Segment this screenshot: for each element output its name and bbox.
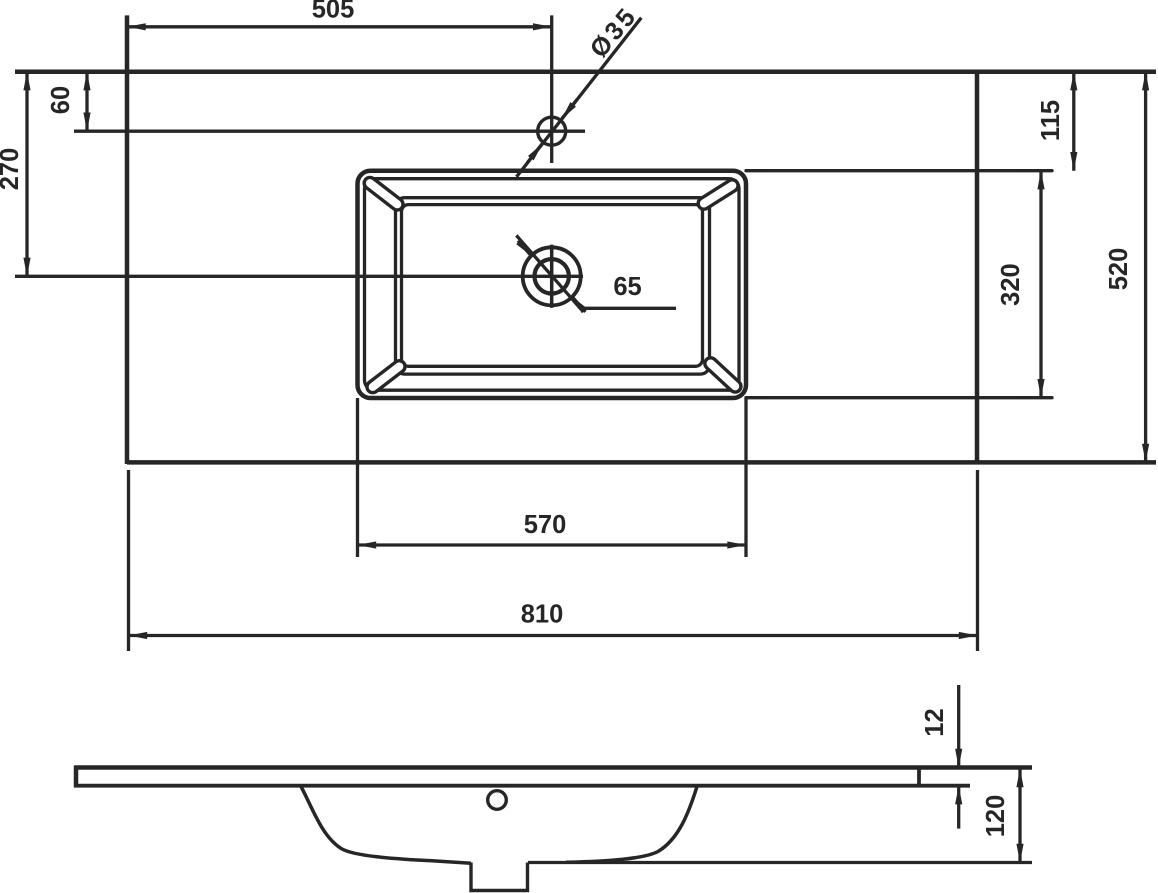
svg-text:65: 65 — [613, 273, 641, 301]
svg-text:810: 810 — [521, 601, 564, 629]
svg-text:120: 120 — [982, 795, 1010, 838]
svg-text:570: 570 — [524, 511, 567, 539]
svg-text:60: 60 — [47, 86, 75, 114]
svg-text:115: 115 — [1037, 100, 1065, 141]
svg-text:270: 270 — [0, 148, 24, 191]
svg-text:520: 520 — [1105, 248, 1133, 291]
svg-text:12: 12 — [921, 708, 949, 736]
svg-text:Ø35: Ø35 — [585, 1, 643, 63]
svg-text:505: 505 — [312, 0, 355, 24]
svg-text:320: 320 — [997, 263, 1025, 306]
